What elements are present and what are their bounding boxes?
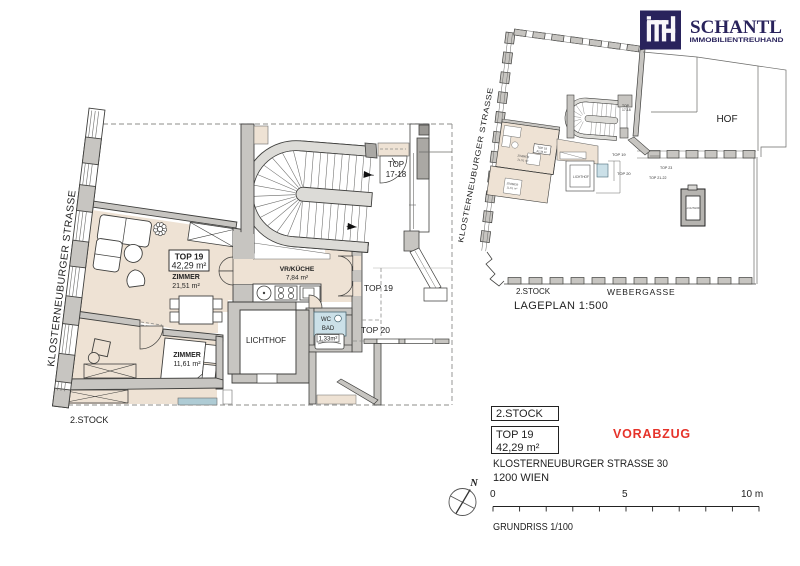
svg-text:WC: WC (321, 317, 332, 323)
svg-text:5: 5 (622, 489, 628, 500)
svg-text:TOP 20: TOP 20 (617, 171, 631, 176)
svg-text:17-18: 17-18 (386, 170, 407, 179)
svg-text:17-18: 17-18 (622, 108, 631, 112)
svg-text:WEBERGASSE: WEBERGASSE (607, 287, 675, 297)
svg-text:0: 0 (490, 489, 496, 500)
svg-text:2.STOCK: 2.STOCK (70, 415, 108, 425)
svg-text:TOP 21-22: TOP 21-22 (649, 176, 666, 180)
svg-text:TOP: TOP (388, 160, 404, 169)
svg-text:TOP 19: TOP 19 (364, 283, 393, 293)
svg-text:2.STOCK: 2.STOCK (516, 287, 551, 296)
svg-text:42,29 m²: 42,29 m² (172, 261, 207, 271)
svg-text:BAD: BAD (322, 326, 335, 332)
svg-text:TOP 19: TOP 19 (612, 152, 626, 157)
svg-text:LAGEPLAN 1:500: LAGEPLAN 1:500 (514, 300, 608, 312)
svg-text:11,61 m²: 11,61 m² (173, 361, 201, 368)
svg-text:LICHTHOF: LICHTHOF (573, 175, 589, 179)
svg-text:ZIMMER: ZIMMER (173, 352, 201, 359)
svg-text:KLOSTERNEUBURGER STRASSE 30: KLOSTERNEUBURGER STRASSE 30 (493, 458, 668, 470)
svg-text:1,33m²: 1,33m² (319, 337, 338, 343)
svg-text:HOF: HOF (716, 114, 737, 125)
svg-text:SCHANTL: SCHANTL (690, 17, 782, 38)
svg-text:21,51 m²: 21,51 m² (172, 283, 200, 290)
svg-text:LICHTHOF: LICHTHOF (246, 336, 286, 345)
svg-text:TOP 19: TOP 19 (496, 429, 534, 441)
svg-text:7,84 m²: 7,84 m² (286, 275, 309, 282)
svg-text:42,29 m²: 42,29 m² (496, 442, 540, 454)
svg-text:TOP 20: TOP 20 (361, 325, 390, 335)
svg-text:2.STOCK: 2.STOCK (496, 408, 544, 420)
svg-text:GRUNDRISS 1/100: GRUNDRISS 1/100 (493, 521, 573, 533)
svg-text:VORABZUG: VORABZUG (613, 427, 691, 441)
svg-text:IMMOBILIENTREUHAND: IMMOBILIENTREUHAND (690, 37, 784, 44)
svg-text:10 m: 10 m (741, 489, 763, 500)
svg-text:N: N (469, 478, 478, 489)
svg-text:LICHTHOF: LICHTHOF (686, 206, 700, 210)
svg-text:TOP 23: TOP 23 (660, 166, 672, 170)
svg-text:1200 WIEN: 1200 WIEN (493, 472, 549, 484)
svg-text:VR/KÜCHE: VR/KÜCHE (280, 264, 315, 273)
svg-text:ZIMMER: ZIMMER (172, 274, 200, 281)
